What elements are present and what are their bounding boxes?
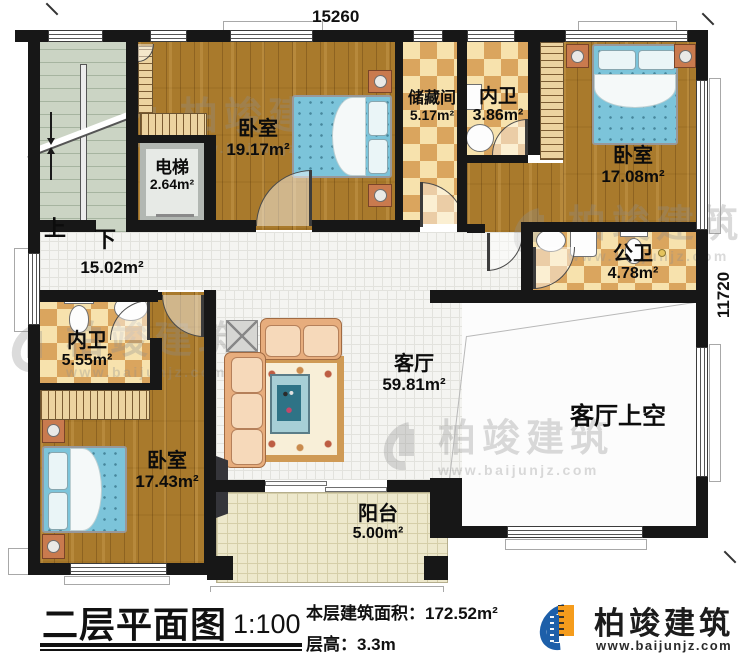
- logo-building-blue: [547, 615, 559, 642]
- door-leaf: [420, 182, 423, 227]
- stair-arrowhead: [47, 147, 55, 154]
- window: [150, 30, 187, 42]
- door-leaf: [147, 300, 150, 340]
- wall: [457, 42, 467, 232]
- wall: [312, 220, 420, 232]
- wall: [533, 222, 696, 232]
- pillow: [368, 101, 388, 136]
- coffee-table-top: [277, 385, 301, 421]
- nightstand: [42, 418, 65, 443]
- pillow: [598, 50, 636, 70]
- brand-website: www.baijunjz.com: [596, 638, 732, 653]
- nightstand: [566, 44, 589, 68]
- wall: [387, 480, 430, 492]
- room-label-storage: 储藏间 5.17m²: [398, 90, 466, 124]
- pillow: [48, 452, 68, 490]
- window: [565, 30, 688, 42]
- balcony-sill: [210, 586, 444, 592]
- stair-direction-arrow: [50, 112, 52, 138]
- sheet-title: 二层平面图: [42, 596, 227, 648]
- window: [48, 30, 103, 42]
- pillow: [638, 50, 676, 70]
- stair-rail: [80, 64, 87, 232]
- window: [70, 563, 167, 575]
- wall: [467, 224, 485, 233]
- wall: [28, 325, 40, 575]
- watermark-url: www.baijunjz.com: [438, 462, 614, 478]
- wall: [28, 290, 158, 302]
- nightstand: [42, 534, 65, 559]
- wall: [462, 526, 507, 538]
- floor-height-text: 层高：3.3m: [306, 630, 396, 655]
- stair-up-label: 上: [44, 217, 66, 242]
- sofa-cushion: [231, 357, 263, 393]
- bed-sheet: [332, 97, 366, 176]
- wall: [430, 290, 708, 303]
- wall: [467, 155, 528, 163]
- stair-direction-arrow: [50, 154, 52, 180]
- dimension-tick: [46, 3, 59, 16]
- window: [507, 526, 643, 538]
- wall: [395, 42, 403, 232]
- brand-logo-icon: [538, 600, 586, 654]
- dimension-top: 15260: [312, 7, 359, 27]
- stair-arrowhead: [47, 138, 55, 145]
- floorplan-canvas: 柏竣建筑 www.baijunjz.com 柏竣建筑 www.baijunjz.…: [0, 0, 750, 592]
- room-label-bedroom-top: 卧室 19.17m²: [193, 118, 323, 159]
- wall: [430, 478, 462, 538]
- balcony-pillar: [424, 556, 448, 580]
- room-label-bath-left: 内卫 5.55m²: [50, 330, 124, 370]
- watermark-logo-icon: [386, 420, 428, 472]
- room-label-living: 客厅 59.81m²: [368, 353, 460, 394]
- sink: [466, 124, 494, 152]
- wall: [204, 290, 216, 563]
- wall: [696, 230, 708, 347]
- wall: [28, 30, 40, 253]
- window-sill: [8, 548, 29, 575]
- balcony-pillar: [207, 556, 233, 580]
- door-leaf: [487, 233, 490, 271]
- title-underline: [40, 643, 302, 651]
- sofa-top: [260, 318, 342, 360]
- wardrobe-hatch: [40, 390, 150, 420]
- room-label-elevator: 电梯 2.64m²: [138, 158, 206, 193]
- bed-sheet: [70, 448, 102, 531]
- room-label-bedroom-bottom: 卧室 17.43m²: [112, 450, 222, 491]
- wall: [28, 563, 70, 575]
- wall: [696, 30, 708, 80]
- wall: [150, 292, 162, 300]
- window: [413, 30, 443, 42]
- bed-double: [592, 44, 678, 145]
- sofa-cushion: [303, 325, 339, 357]
- room-label-public-bath: 公卫 4.78m²: [588, 243, 678, 283]
- elevator-door: [156, 214, 194, 217]
- coffee-table: [270, 374, 310, 434]
- wall: [443, 30, 467, 42]
- wall: [643, 526, 708, 538]
- bed-sheet: [594, 74, 676, 108]
- floor-area-text: 本层建筑面积：172.52m²: [306, 599, 498, 624]
- pillow: [48, 492, 68, 530]
- toilet-bowl: [69, 305, 89, 333]
- window: [696, 347, 708, 477]
- window-sill: [709, 344, 721, 482]
- door-leaf: [533, 247, 536, 289]
- floorplan-page: 柏竣建筑 www.baijunjz.com 柏竣建筑 www.baijunjz.…: [0, 0, 750, 666]
- wall: [150, 338, 162, 390]
- sheet-scale: 1:100: [233, 609, 301, 640]
- sofa-cushion: [231, 393, 263, 429]
- wall: [313, 30, 413, 42]
- window-sill: [64, 576, 170, 585]
- sofa-left: [224, 352, 266, 468]
- wall: [216, 480, 265, 492]
- hall-area-label: 15.02m²: [62, 258, 162, 277]
- door-leaf: [309, 170, 312, 226]
- nightstand: [368, 70, 392, 93]
- corner-table: [226, 320, 258, 352]
- sliding-door: [265, 481, 327, 486]
- window: [467, 30, 515, 42]
- sofa-cushion: [265, 325, 301, 357]
- wardrobe-hatch: [540, 42, 564, 160]
- dimension-right: 11720: [714, 255, 734, 335]
- window: [230, 30, 313, 42]
- nightstand: [368, 184, 392, 207]
- room-label-bedroom-right: 卧室 17.08m²: [578, 145, 688, 186]
- room-label-bath-top: 内卫 3.86m²: [460, 86, 536, 125]
- window: [696, 80, 708, 230]
- dimension-tick: [702, 13, 715, 26]
- sliding-door: [325, 487, 387, 492]
- brand-name: 柏竣建筑: [594, 598, 734, 643]
- pillow: [368, 139, 388, 174]
- wall: [187, 30, 230, 42]
- logo-building-orange: [558, 605, 574, 636]
- wall: [515, 30, 565, 42]
- brand-logo: 柏竣建筑 www.baijunjz.com: [538, 598, 738, 660]
- window: [28, 253, 40, 325]
- room-label-living-void: 客厅上空: [548, 404, 688, 431]
- wall: [126, 30, 138, 232]
- wall: [40, 383, 150, 390]
- sofa-cushion: [231, 429, 263, 465]
- window-sill: [505, 539, 647, 550]
- room-label-balcony: 阳台 5.00m²: [328, 503, 428, 543]
- stair-down-label: 下: [94, 228, 116, 253]
- wall: [126, 220, 256, 232]
- window-sill: [14, 248, 29, 332]
- nightstand: [674, 44, 696, 68]
- dimension-tick: [724, 551, 737, 564]
